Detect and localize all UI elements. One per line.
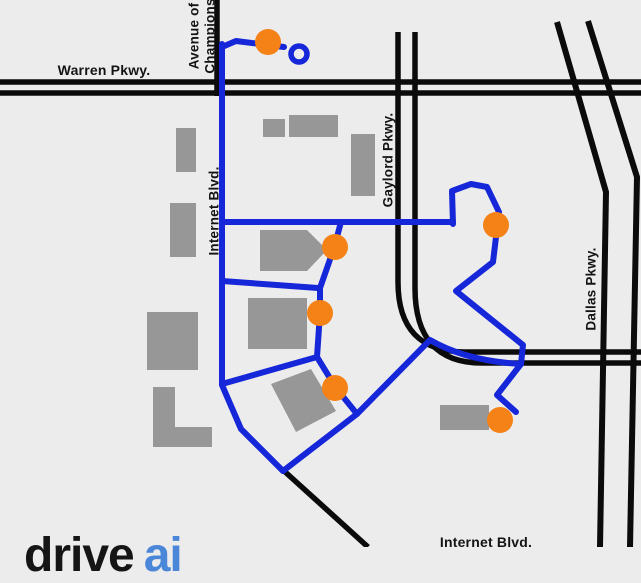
road-dallas-pkwy-west [557, 22, 606, 547]
street-label-dallas-pkwy: Dallas Pkwy. [584, 247, 599, 330]
building [176, 128, 196, 172]
street-label-gaylord-pkwy: Gaylord Pkwy. [381, 113, 396, 208]
stop-marker [322, 375, 348, 401]
street-label-internet-blvd-vertical: Internet Blvd. [207, 166, 222, 255]
stop-marker [255, 29, 281, 55]
logo-text-drive: drive [24, 529, 134, 582]
route-map [0, 0, 641, 547]
building [147, 312, 198, 370]
building [289, 115, 338, 137]
stop-marker [487, 407, 513, 433]
stop-marker [307, 300, 333, 326]
street-label-avenue-of-champions: Avenue of Champions [186, 0, 217, 74]
building [263, 119, 285, 137]
logo-text-ai: ai [144, 529, 182, 582]
street-label-warren-pkwy: Warren Pkwy. [58, 62, 151, 78]
building [170, 203, 196, 257]
avenue-label-line1: Avenue of [186, 0, 202, 74]
building [351, 134, 375, 196]
route-segment [222, 281, 318, 288]
building [248, 298, 307, 349]
building [440, 405, 489, 430]
route-turnaround-loop [291, 46, 307, 62]
avenue-label-line2: Champions [202, 0, 218, 74]
building [153, 387, 212, 447]
stop-marker [322, 234, 348, 260]
drive-ai-logo: driveai [24, 528, 182, 583]
street-label-internet-blvd-bottom: Internet Blvd. [440, 534, 532, 550]
building [260, 230, 327, 271]
road-southeast-diagonal [283, 470, 368, 547]
stop-marker [483, 212, 509, 238]
